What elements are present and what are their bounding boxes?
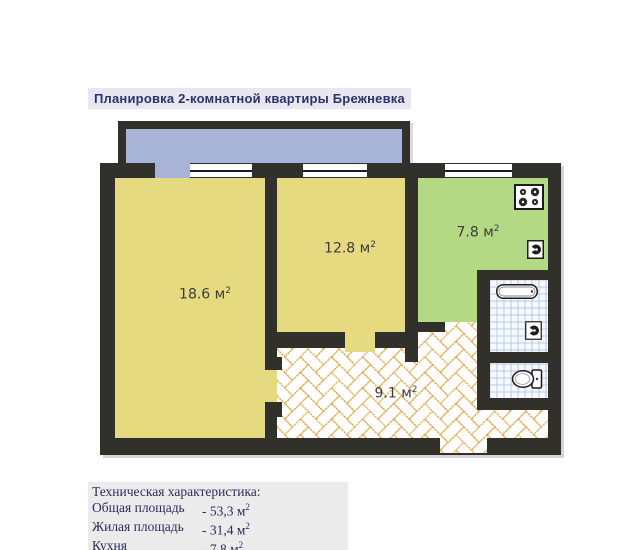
room1-window — [190, 164, 252, 177]
balcony-door-opening — [155, 163, 190, 178]
kitchen-area-label: 7.8 м2 — [428, 224, 528, 241]
specs-value-sup: 2 — [245, 502, 250, 512]
specs-value-text: - 53,3 м — [202, 503, 245, 518]
room1-area-sup: 2 — [225, 286, 231, 296]
specs-value-text: - 31,4 м — [202, 522, 245, 537]
hallway-area-value: 9.1 м — [374, 386, 411, 402]
room2-door-opening — [345, 332, 375, 352]
room2-area-value: 12.8 м — [324, 241, 370, 257]
bathtub-icon — [496, 284, 538, 299]
kitchen-area-sup: 2 — [494, 224, 500, 234]
room1-area-label: 18.6 м2 — [155, 286, 255, 303]
page-title: Планировка 2-комнатной квартиры Брежневк… — [88, 88, 411, 109]
specs-value: - 7,8 м2 — [202, 538, 243, 550]
specs-value-text: - 7,8 м — [202, 541, 239, 550]
room2-area-label: 12.8 м2 — [300, 240, 400, 257]
kitchen-window — [445, 164, 512, 177]
room1-door-opening — [265, 370, 277, 402]
hallway-area-label: 9.1 м2 — [346, 385, 446, 402]
kitchen-stub-wall — [418, 322, 445, 332]
specs-value-sup: 2 — [239, 540, 244, 550]
room1-floor — [115, 178, 265, 438]
room1-door-jamb-top — [277, 357, 282, 370]
floorplan-page: Планировка 2-комнатной квартиры Брежневк… — [0, 0, 630, 550]
room1-door-jamb-bottom — [277, 402, 282, 417]
stove-icon — [514, 184, 544, 210]
technical-specs: Техническая характеристика: Общая площад… — [88, 482, 348, 550]
room1-area-value: 18.6 м — [179, 287, 225, 303]
kitchen-floor-extension — [418, 270, 477, 322]
window-pane-line — [190, 170, 252, 172]
window-pane-line — [445, 170, 512, 172]
specs-value: - 31,4 м2 — [202, 519, 250, 538]
room2-window — [303, 164, 367, 177]
specs-value: - 53,3 м2 — [202, 500, 250, 519]
kitchen-sink-icon — [527, 240, 544, 259]
specs-value-sup: 2 — [245, 521, 250, 531]
bath-toilet-divider-wall — [490, 352, 548, 363]
toilet-icon — [511, 368, 543, 390]
bathroom-left-wall — [477, 280, 490, 410]
toilet-bottom-wall — [477, 398, 548, 410]
specs-row-kitchen: Кухня - 7,8 м2 — [92, 538, 344, 550]
balcony-floor — [126, 129, 402, 166]
kitchen-area-value: 7.8 м — [456, 225, 493, 241]
specs-row-living: Жилая площадь - 31,4 м2 — [92, 519, 344, 538]
specs-label: Общая площадь — [92, 500, 202, 519]
room2-area-sup: 2 — [370, 240, 376, 250]
specs-label: Кухня — [92, 538, 202, 550]
hallway-area-sup: 2 — [412, 385, 418, 395]
washbasin-icon — [525, 321, 542, 340]
window-pane-line — [303, 170, 367, 172]
specs-heading: Техническая характеристика: — [92, 484, 344, 500]
bathroom-top-wall — [477, 270, 561, 280]
specs-label: Жилая площадь — [92, 519, 202, 538]
specs-row-total: Общая площадь - 53,3 м2 — [92, 500, 344, 519]
